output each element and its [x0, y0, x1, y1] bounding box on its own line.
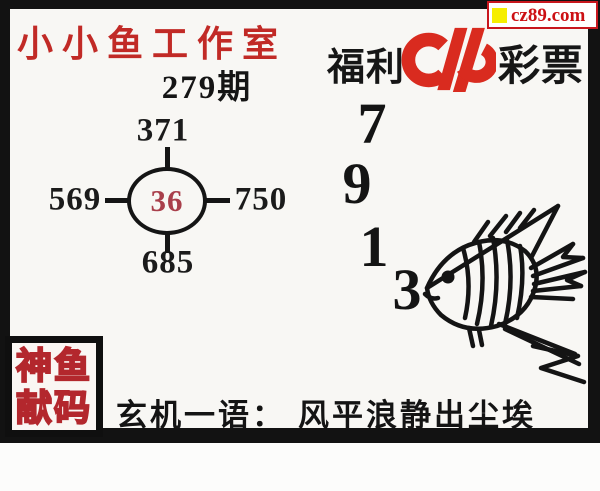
website-badge: cz89.com: [487, 1, 598, 29]
brand-text-caipiao: 彩票: [498, 32, 584, 93]
brand-text-fuli: 福利: [327, 36, 405, 91]
stamp-row-2: 献码: [16, 388, 92, 428]
fish-illustration: [412, 196, 600, 400]
issue-number: 279期: [162, 60, 253, 108]
diagram-top-number: 371: [137, 113, 190, 150]
stamp-row-1: 神鱼: [16, 346, 92, 386]
big-digit-1: 7: [358, 95, 387, 153]
spoke-top: [165, 147, 170, 168]
spoke-left: [105, 198, 128, 203]
spoke-bottom: [165, 234, 170, 253]
big-digit-3: 1: [360, 218, 389, 276]
hint-text: 风平浪静出尘埃: [298, 390, 536, 435]
stamp-box: 神鱼 献码: [5, 336, 103, 437]
bottom-white-strip: [0, 443, 600, 491]
spoke-right: [206, 198, 230, 203]
diagram-left-number: 569: [49, 182, 102, 219]
hint-label: 玄机一语：: [116, 390, 286, 435]
diagram-center-number: 36: [151, 183, 184, 219]
hint-sentence: 玄机一语： 风平浪静出尘埃: [116, 390, 536, 435]
lottery-tip-poster: cz89.com 小小鱼工作室 279期 福利 彩票 371 569 750 6…: [0, 0, 600, 491]
welfare-lottery-logo-icon: [398, 24, 496, 94]
website-url: cz89.com: [511, 6, 585, 25]
diagram-circle: 36: [127, 167, 207, 235]
big-digit-2: 9: [343, 155, 372, 213]
diagram-right-number: 750: [235, 182, 288, 219]
yellow-square-icon: [492, 8, 507, 23]
